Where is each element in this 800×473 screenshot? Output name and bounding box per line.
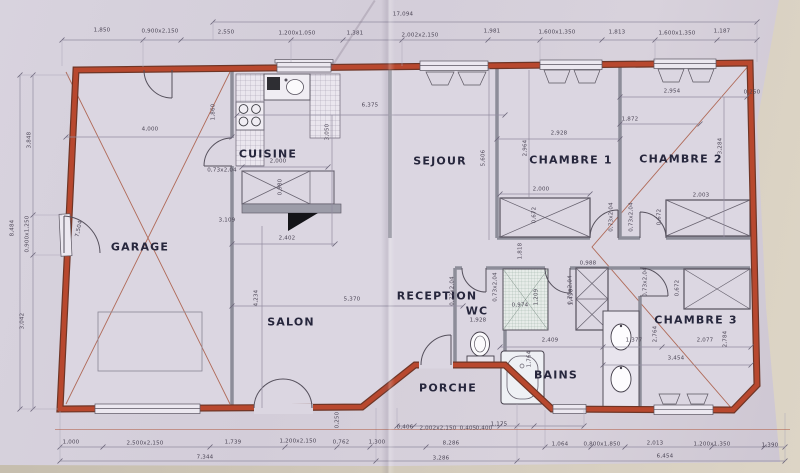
dimension-label: 3,109 bbox=[219, 218, 236, 224]
dimension-label: 1,064 bbox=[552, 442, 569, 448]
dimension-label: 8,484 bbox=[10, 220, 16, 237]
dimension-label: 6,375 bbox=[362, 103, 379, 109]
dimension-label: 5,606 bbox=[481, 150, 487, 167]
dimension-label: 2,928 bbox=[551, 131, 568, 137]
dimension-label: 3,284 bbox=[718, 138, 724, 155]
dimension-label: 1,000 bbox=[63, 440, 80, 446]
dimension-label: 1,981 bbox=[484, 29, 501, 35]
floorplan-drawing bbox=[0, 0, 800, 473]
dimension-label: 0,672 bbox=[675, 280, 681, 297]
door-size-label: 0,73x2,04 bbox=[450, 276, 456, 306]
dimension-label: 0,800x1,850 bbox=[584, 442, 621, 448]
dimension-label: 8,286 bbox=[443, 441, 460, 447]
dimension-label: 3,050 bbox=[325, 124, 331, 141]
dimension-label: 2,003 bbox=[693, 193, 710, 199]
dimension-label: 0,250 bbox=[335, 412, 341, 429]
dimension-label: 2,000 bbox=[270, 159, 287, 165]
room-label-chambre1: CHAMBRE 1 bbox=[529, 155, 612, 166]
door-size-label: 0,73x2,04 bbox=[568, 275, 574, 305]
dimension-label: 2,402 bbox=[279, 236, 296, 242]
dimension-label: 1,187 bbox=[714, 29, 731, 35]
dimension-label: 0,988 bbox=[580, 261, 597, 267]
dimension-label: 2,002x2,150 bbox=[420, 426, 457, 432]
kitchen-sink bbox=[264, 74, 310, 100]
dimension-label: 3,454 bbox=[668, 356, 685, 362]
door-size-label: 0,73x2,04 bbox=[609, 202, 615, 232]
dimension-label: 3,286 bbox=[433, 456, 450, 462]
dimension-label: 1,764 bbox=[527, 351, 533, 368]
dimension-label: 0,672 bbox=[657, 209, 663, 226]
door-size-label: 0,73x2,04 bbox=[643, 267, 649, 297]
wardrobe-chambre1 bbox=[500, 198, 590, 237]
door-size-label: 0,73x2,04 bbox=[207, 168, 237, 174]
room-label-reception: RECEPTION bbox=[397, 291, 478, 302]
dimension-label: 1,377 bbox=[626, 338, 643, 344]
dimension-label: 0,980 bbox=[278, 179, 284, 196]
room-label-salon: SALON bbox=[267, 317, 315, 328]
dimension-label: 1,872 bbox=[622, 117, 639, 123]
room-label-sejour: SEJOUR bbox=[413, 156, 466, 167]
room-label-chambre3: CHAMBRE 3 bbox=[654, 315, 737, 326]
door-size-label: 0,73x2,04 bbox=[493, 272, 499, 302]
dimension-label: 1,200x2,150 bbox=[280, 439, 317, 445]
dimension-label: 2,002x2,150 bbox=[402, 33, 439, 39]
dimension-label: 2,964 bbox=[523, 140, 529, 157]
dimension-label: 0,406 bbox=[397, 425, 414, 431]
dimension-label: 4,000 bbox=[142, 127, 159, 133]
double-washbasin bbox=[603, 311, 639, 407]
room-label-bains: BAINS bbox=[534, 370, 578, 381]
shower bbox=[503, 269, 548, 330]
wardrobe-chambre2 bbox=[666, 200, 750, 236]
dimension-label: 17,094 bbox=[393, 12, 413, 18]
dimension-label: 1,928 bbox=[470, 318, 487, 324]
dimension-label: 5,370 bbox=[344, 297, 361, 303]
dimension-label: 2,954 bbox=[664, 89, 681, 95]
dimension-label: 1,209 bbox=[534, 289, 540, 306]
dimension-label: 1,813 bbox=[609, 30, 626, 36]
dimension-label: 1,818 bbox=[518, 243, 524, 260]
dimension-label: 1,390 bbox=[762, 443, 779, 449]
dimension-label: 1,860 bbox=[211, 104, 217, 121]
room-label-wc: WC bbox=[466, 306, 489, 317]
room-label-porche: PORCHE bbox=[419, 383, 477, 394]
dimension-label: 3,042 bbox=[20, 313, 26, 330]
dimension-label: 6,454 bbox=[657, 454, 674, 460]
dimension-label: 1,200x1,050 bbox=[279, 31, 316, 37]
dimension-label: 2,409 bbox=[542, 338, 559, 344]
dimension-label: 3,848 bbox=[27, 132, 33, 149]
dimension-label: 0,250 bbox=[744, 90, 761, 96]
door-size-label: 0,73x2,04 bbox=[629, 202, 635, 232]
dimension-label: 1,175 bbox=[491, 422, 508, 428]
wardrobe-chambre3 bbox=[684, 269, 750, 309]
dimension-label: 1,739 bbox=[225, 440, 242, 446]
dimension-label: 0,974 bbox=[512, 303, 529, 309]
dimension-label: 2,000 bbox=[533, 187, 550, 193]
room-label-chambre2: CHAMBRE 2 bbox=[639, 154, 722, 165]
dimension-label: 7,344 bbox=[197, 455, 214, 461]
room-label-cuisine: CUISINE bbox=[239, 149, 297, 160]
dimension-label: 2,764 bbox=[653, 326, 659, 343]
dimension-label: 4,234 bbox=[254, 290, 260, 307]
dimension-label: 1,600x1,350 bbox=[659, 31, 696, 37]
dimension-label: 1,850 bbox=[94, 28, 111, 34]
dimension-label: 2,077 bbox=[697, 338, 714, 344]
dimension-label: 1,200x1,350 bbox=[694, 442, 731, 448]
dimension-label: 1,300 bbox=[369, 440, 386, 446]
dimension-label: 2,550 bbox=[218, 30, 235, 36]
dimension-label: 1,600x1,350 bbox=[539, 30, 576, 36]
dimension-label: 0,900x2,150 bbox=[142, 29, 179, 35]
dimension-label: 2,500x2,150 bbox=[127, 441, 164, 447]
dimension-label: 0,762 bbox=[333, 440, 350, 446]
cooktop bbox=[236, 102, 264, 130]
dimension-label: 2,013 bbox=[647, 441, 664, 447]
dimension-label: 0,405 bbox=[460, 426, 477, 432]
room-label-garage: GARAGE bbox=[111, 242, 169, 253]
photo-of-floorplan: GARAGE CUISINE SEJOUR CHAMBRE 1 CHAMBRE … bbox=[0, 0, 800, 473]
dimension-label: 2,784 bbox=[723, 331, 729, 348]
dimension-label: 0,900x1,250 bbox=[25, 216, 31, 253]
dimension-label: 0,672 bbox=[532, 207, 538, 224]
